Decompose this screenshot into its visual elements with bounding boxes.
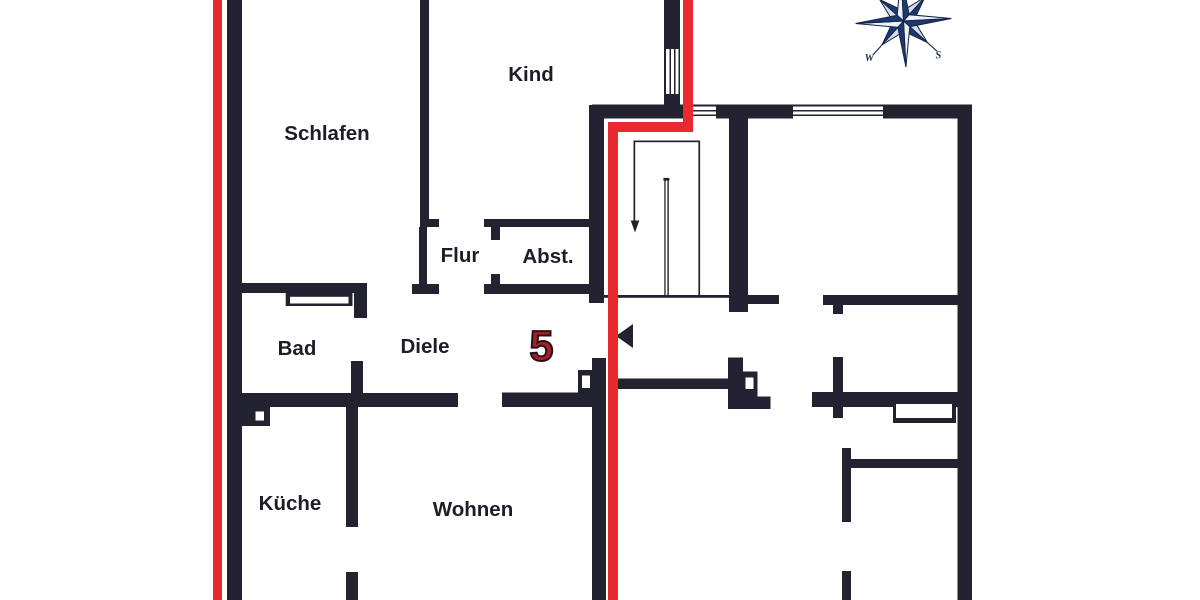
svg-text:Schlafen: Schlafen: [284, 122, 369, 145]
svg-text:Diele: Diele: [401, 335, 450, 358]
svg-text:Abst.: Abst.: [522, 245, 573, 268]
svg-text:W: W: [864, 53, 875, 65]
svg-text:Kind: Kind: [508, 63, 554, 86]
svg-text:Bad: Bad: [278, 337, 317, 360]
svg-text:5: 5: [530, 323, 554, 371]
svg-text:Flur: Flur: [441, 244, 480, 267]
svg-text:Küche: Küche: [259, 492, 322, 515]
svg-text:S: S: [935, 50, 942, 61]
svg-text:Wohnen: Wohnen: [433, 498, 513, 521]
